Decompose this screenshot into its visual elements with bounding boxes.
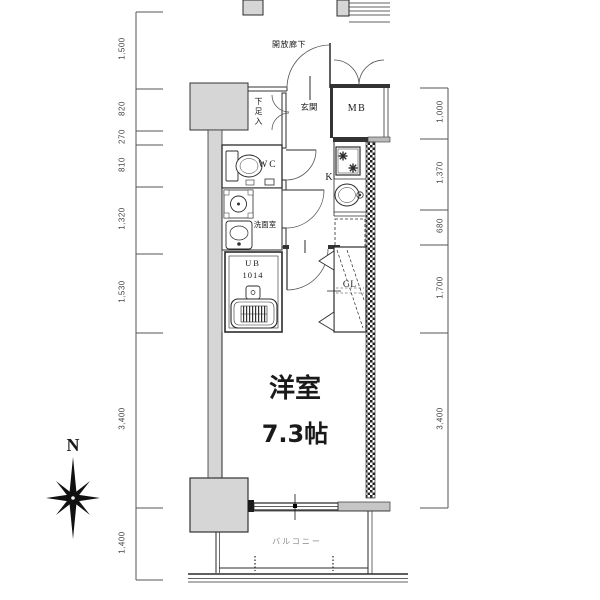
dimension-label: 680 [436, 206, 445, 246]
entrance-door-arc [287, 45, 330, 88]
window-lock [293, 504, 297, 508]
main-room-size: 7.3帖 [225, 421, 365, 447]
washroom-room [222, 188, 282, 250]
mb-door-arc [359, 60, 384, 85]
dimension-label: 1,370 [436, 153, 445, 193]
dimension-label: 3,400 [118, 399, 127, 439]
hatched-exterior-wall [366, 142, 375, 498]
dimension-label: 1,500 [118, 29, 127, 69]
open-corridor-label: 開放廊下 [259, 41, 319, 50]
meter-box-label: MB [337, 103, 377, 114]
compass-star-icon [46, 457, 100, 539]
bath-size-label: 1014 [233, 271, 273, 280]
dimension-label: 1,530 [118, 272, 127, 312]
floorplan-drawing [0, 0, 600, 600]
room-door-arc [287, 249, 328, 290]
dimension-label: 1,000 [436, 92, 445, 132]
burner-icon [349, 164, 358, 173]
dimension-label: 1,320 [118, 199, 127, 239]
wc-label: WC [248, 160, 288, 170]
burner-icon [339, 152, 348, 161]
kitchen-area [334, 142, 366, 247]
bath-label: UB [233, 259, 273, 268]
refrigerator-space [335, 219, 365, 247]
kitchen-label: K [309, 172, 349, 183]
compass-north-label: N [53, 436, 93, 456]
washroom-label: 洗面室 [235, 221, 295, 229]
floorplan-page: 開放廊下 下足入 玄関 MB WC K 洗面室 UB 1014 CL 洋室 7.… [0, 0, 600, 600]
closet-door-mark [319, 312, 334, 331]
dimension-label: 3,400 [436, 399, 445, 439]
top-structures [243, 0, 390, 22]
closet-door-mark [319, 251, 334, 270]
shoe-cabinet-label: 下足入 [253, 97, 264, 127]
mb-door-arc [334, 60, 359, 85]
dimension-label: 1,700 [436, 268, 445, 308]
dimension-label: 1,400 [118, 523, 127, 563]
entrance-label: 玄関 [289, 103, 329, 112]
main-room-name: 洋室 [235, 375, 355, 404]
closet-label: CL [330, 280, 370, 290]
dimension-label: 810 [118, 145, 127, 185]
left-dimension-ruler [136, 12, 163, 580]
balcony-label: バルコニー [247, 538, 347, 547]
